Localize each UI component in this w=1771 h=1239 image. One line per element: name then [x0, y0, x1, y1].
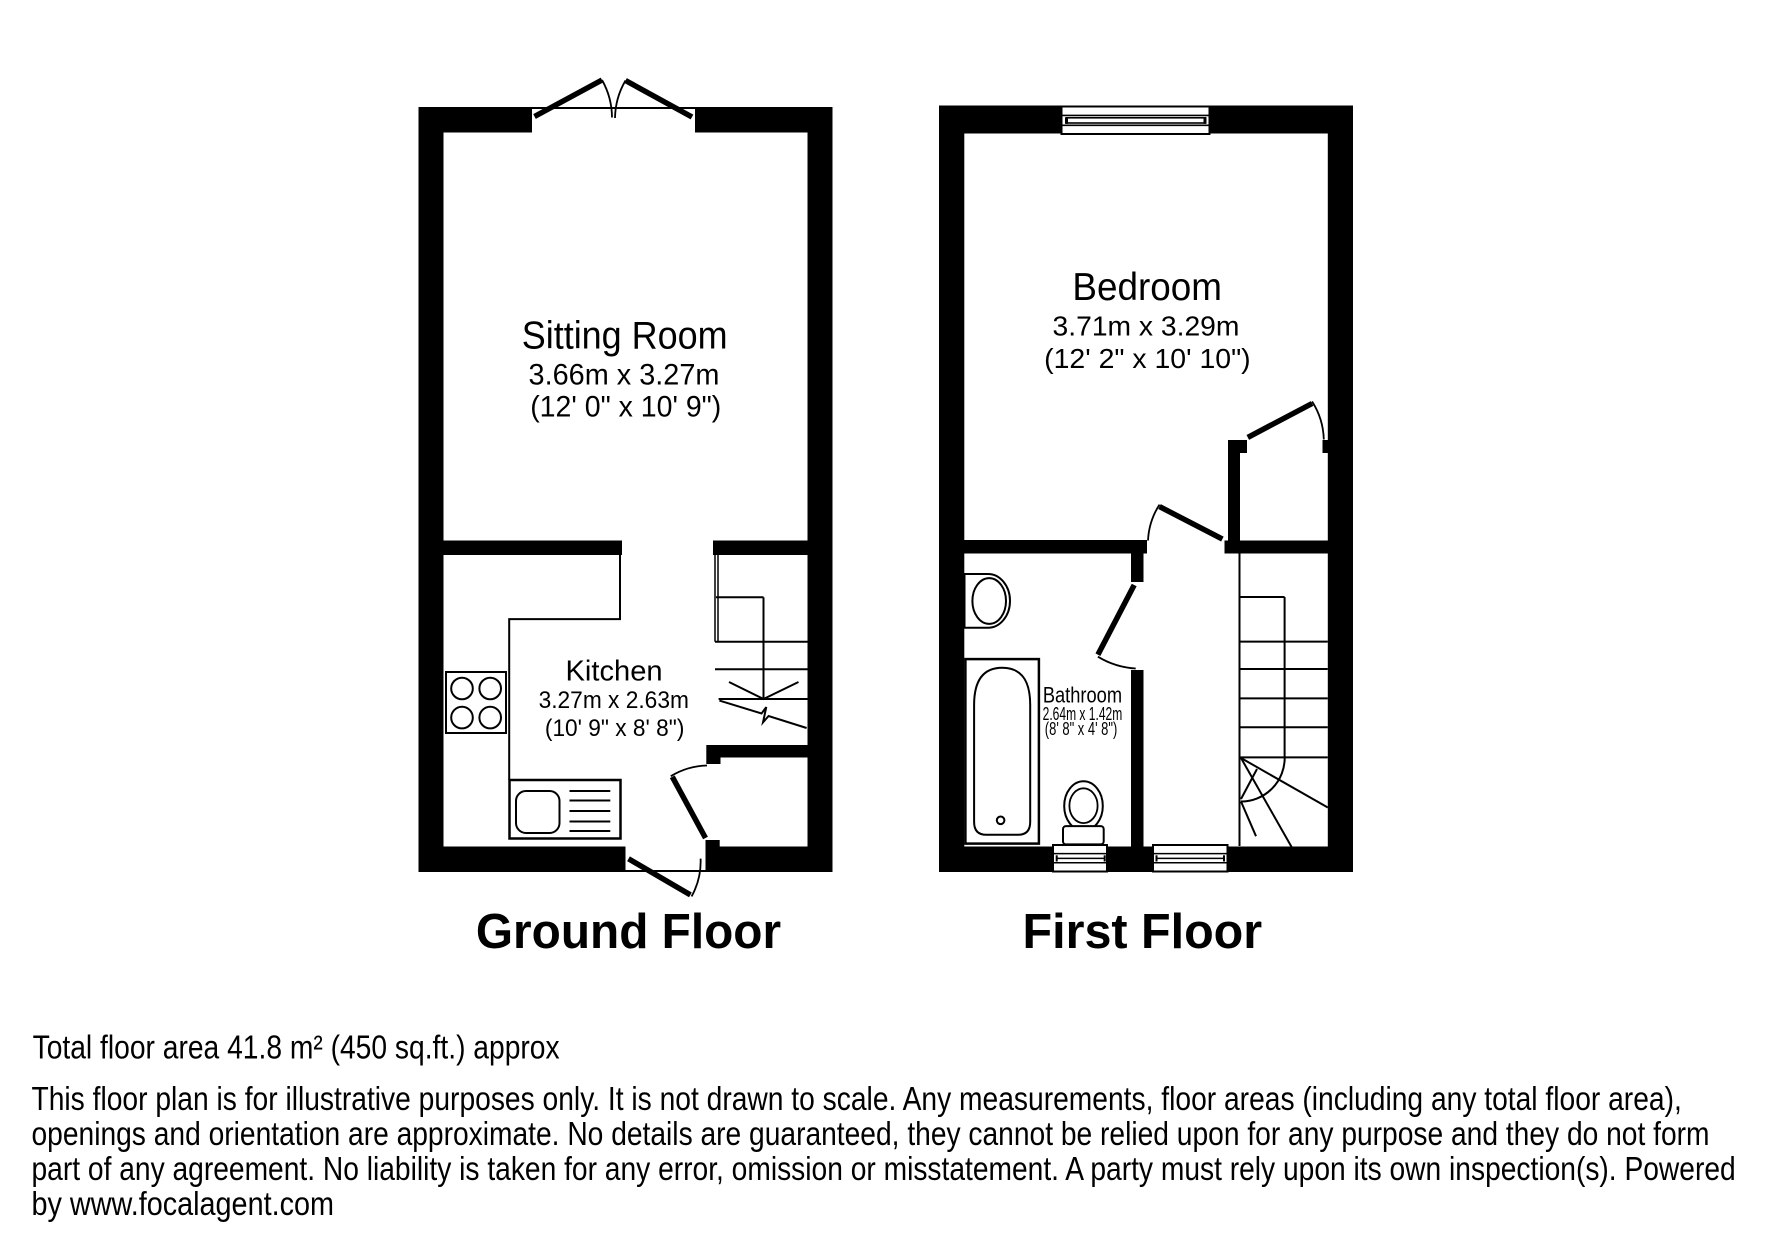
svg-text:by www.focalagent.com: by www.focalagent.com [32, 1185, 335, 1222]
svg-text:This floor plan is for illustr: This floor plan is for illustrative purp… [32, 1080, 1682, 1117]
svg-text:(8' 8" x 4' 8"): (8' 8" x 4' 8") [1045, 719, 1118, 739]
svg-text:3.66m x 3.27m: 3.66m x 3.27m [529, 358, 720, 391]
svg-text:3.27m x 2.63m: 3.27m x 2.63m [539, 687, 689, 714]
svg-text:Ground Floor: Ground Floor [476, 904, 781, 959]
svg-text:Sitting Room: Sitting Room [522, 315, 728, 358]
svg-text:Total floor area 41.8 m² (450: Total floor area 41.8 m² (450 sq.ft.) ap… [33, 1029, 560, 1066]
svg-text:(10' 9" x 8' 8"): (10' 9" x 8' 8") [545, 715, 685, 742]
svg-text:3.71m x 3.29m: 3.71m x 3.29m [1053, 310, 1240, 341]
svg-text:(12' 2" x 10' 10"): (12' 2" x 10' 10") [1044, 343, 1251, 374]
svg-text:(12' 0" x 10' 9"): (12' 0" x 10' 9") [530, 390, 721, 423]
svg-text:Kitchen: Kitchen [566, 655, 663, 687]
svg-text:openings and orientation are a: openings and orientation are approximate… [32, 1115, 1710, 1152]
svg-text:part of any agreement. No liab: part of any agreement. No liability is t… [32, 1150, 1736, 1187]
svg-text:Bedroom: Bedroom [1072, 266, 1222, 309]
svg-text:First Floor: First Floor [1023, 904, 1263, 959]
